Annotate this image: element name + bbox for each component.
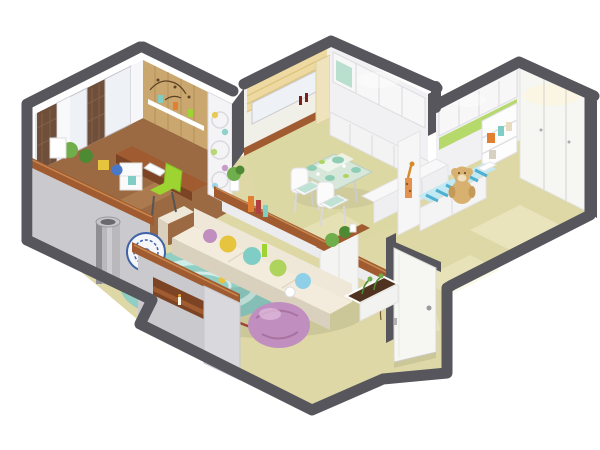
isometric-floorplan [0, 0, 600, 450]
corner-cabinet [316, 55, 330, 125]
wardrobe-side-panel [398, 131, 420, 235]
door-panel [394, 248, 436, 362]
bean-bag [248, 302, 310, 348]
sheer-curtain [131, 60, 143, 124]
apartment-render-canvas [0, 0, 600, 450]
door-handle [427, 306, 432, 311]
room-divider-screen [208, 92, 232, 206]
wall-junction [232, 88, 244, 168]
